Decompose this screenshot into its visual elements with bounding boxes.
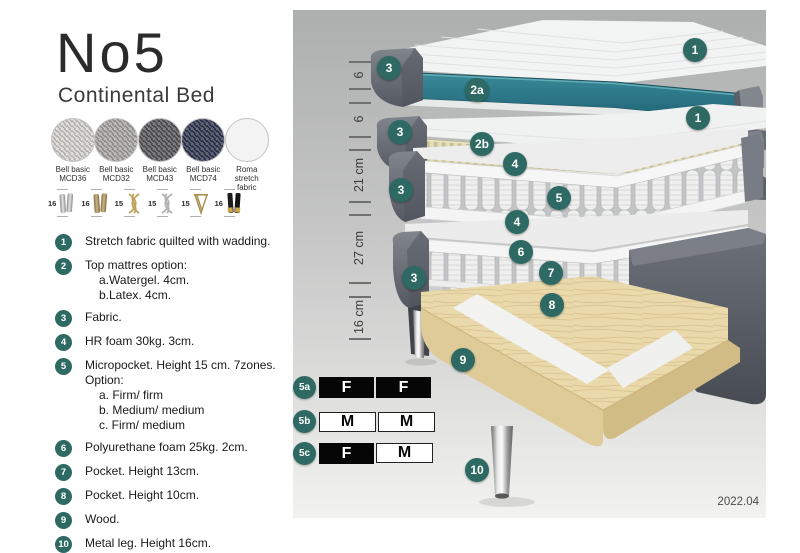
leg-height-label: 16 (215, 199, 223, 208)
fabric-swatch-circle (51, 118, 95, 162)
callout-1: 1 (686, 106, 710, 130)
measure-dash (157, 189, 168, 190)
feature-text: Stretch fabric quilted with wadding. (85, 234, 270, 249)
firmness-row-label: 5a (293, 376, 316, 399)
firmness-cell: F (319, 443, 374, 464)
feature-item: 6 Polyurethane foam 25kg. 2cm. (55, 440, 287, 457)
product-sheet-page: { "header": { "title": "No5", "subtitle"… (0, 0, 800, 533)
measure-label: 16 cm (352, 287, 368, 347)
feature-number-badge: 5 (55, 358, 72, 375)
fabric-swatch: Bell basicMCD74 (182, 118, 226, 192)
twisted-silver-leg-icon (157, 191, 177, 215)
feature-text: Pocket. Height 13cm. (85, 464, 199, 479)
fabric-swatch: Bell basicMCD36 (51, 118, 95, 192)
page-title: No5 (56, 20, 168, 85)
cylinder-black-gold-leg-icon (224, 191, 244, 215)
callout-9: 9 (451, 348, 475, 372)
cylinder-silver-leg-icon (57, 191, 77, 215)
feature-text: Top mattres option: a.Watergel. 4cm. b.L… (85, 258, 189, 303)
measure-dash (157, 216, 168, 217)
feature-list: 1 Stretch fabric quilted with wadding. 2… (55, 234, 287, 553)
measure-label: 21 cm (352, 145, 368, 205)
leg-height-label: 15 (148, 199, 156, 208)
measure-tick (349, 282, 371, 284)
exploded-view-panel: 6 6 21 cm 27 cm 16 cm 1 2a 3 1 2b 3 4 5 … (293, 10, 766, 518)
feature-subitem: b.Latex. 4cm. (99, 288, 189, 303)
fabric-swatch-circle (225, 118, 269, 162)
feature-number-badge: 9 (55, 512, 72, 529)
fabric-swatch: Bell basicMCD32 (95, 118, 139, 192)
feature-item: 7 Pocket. Height 13cm. (55, 464, 287, 481)
callout-4: 4 (505, 210, 529, 234)
firmness-row: 5c F M (293, 442, 433, 465)
callout-2a: 2a (465, 78, 489, 102)
callout-3: 3 (388, 120, 412, 144)
feature-item: 2 Top mattres option: a.Watergel. 4cm. b… (55, 258, 287, 303)
callout-3: 3 (402, 266, 426, 290)
feature-number-badge: 7 (55, 464, 72, 481)
leg-option: 16 (48, 188, 77, 218)
fabric-swatch-circle (94, 118, 138, 162)
fabric-swatch-label: Bell basicMCD74 (186, 165, 220, 183)
callout-8: 8 (540, 293, 564, 317)
feature-item: 10 Metal leg. Height 16cm. (55, 536, 287, 553)
fabric-swatch-label: Bell basicMCD43 (143, 165, 177, 183)
leg-option: 15 (148, 188, 177, 218)
feature-number-badge: 3 (55, 310, 72, 327)
feature-text: Micropocket. Height 15 cm. 7zones. Optio… (85, 358, 287, 433)
fabric-swatch-circle (181, 118, 225, 162)
measure-dash (190, 189, 201, 190)
callout-3: 3 (389, 178, 413, 202)
hairpin-leg-icon (191, 191, 211, 215)
firmness-row-label: 5b (293, 410, 316, 433)
fabric-swatch-label: Bell basicMCD36 (56, 165, 90, 183)
firmness-cell: M (376, 443, 433, 463)
callout-6: 6 (509, 240, 533, 264)
callout-1: 1 (683, 38, 707, 62)
measure-dash (124, 216, 135, 217)
measure-dash (124, 189, 135, 190)
feature-number-badge: 4 (55, 334, 72, 351)
fabric-swatch-circle (138, 118, 182, 162)
fabric-swatch: Bell basicMCD43 (138, 118, 182, 192)
feature-number-badge: 10 (55, 536, 72, 553)
firmness-cell: M (319, 412, 376, 432)
feature-subitem: b. Medium/ medium (99, 403, 287, 418)
firmness-row: 5b M M (293, 410, 435, 433)
feature-text: Polyurethane foam 25kg. 2cm. (85, 440, 248, 455)
feature-number-badge: 2 (55, 258, 72, 275)
leg-height-label: 15 (181, 199, 189, 208)
leg-option: 16 (81, 188, 110, 218)
feature-text: Fabric. (85, 310, 122, 325)
feature-item: 1 Stretch fabric quilted with wadding. (55, 234, 287, 251)
feature-number-badge: 6 (55, 440, 72, 457)
callout-2b: 2b (470, 132, 494, 156)
feature-number-badge: 1 (55, 234, 72, 251)
measure-dash (224, 216, 235, 217)
feature-text: Pocket. Height 10cm. (85, 488, 199, 503)
measure-label: 27 cm (352, 218, 368, 278)
callout-4: 4 (503, 152, 527, 176)
callout-10: 10 (465, 458, 489, 482)
leg-option: 15 (181, 188, 210, 218)
feature-text: HR foam 30kg. 3cm. (85, 334, 194, 349)
feature-item: 3 Fabric. (55, 310, 287, 327)
measure-dash (91, 189, 102, 190)
twisted-gold-leg-icon (124, 191, 144, 215)
feature-item: 9 Wood. (55, 512, 287, 529)
callout-7: 7 (539, 261, 563, 285)
feature-text: Metal leg. Height 16cm. (85, 536, 211, 551)
leg-height-label: 16 (81, 199, 89, 208)
firmness-row: 5a F F (293, 376, 431, 399)
measure-dash (57, 216, 68, 217)
page-subtitle: Continental Bed (58, 84, 215, 108)
version-label: 2022.04 (717, 496, 759, 508)
feature-text: Wood. (85, 512, 119, 527)
leg-options-row: 16 16 15 (48, 188, 244, 218)
measure-tick (349, 214, 371, 216)
firmness-cell: F (376, 377, 431, 398)
firmness-cell: M (378, 412, 435, 432)
cylinder-brass-leg-icon (91, 191, 111, 215)
measure-dash (190, 216, 201, 217)
callout-5: 5 (547, 186, 571, 210)
leg-option: 16 (215, 188, 244, 218)
feature-number-badge: 8 (55, 488, 72, 505)
feature-item: 8 Pocket. Height 10cm. (55, 488, 287, 505)
firmness-row-label: 5c (293, 442, 316, 465)
measure-dash (91, 216, 102, 217)
feature-item: 5 Micropocket. Height 15 cm. 7zones. Opt… (55, 358, 287, 433)
fabric-swatch-list: Bell basicMCD36 Bell basicMCD32 Bell bas… (51, 118, 269, 192)
feature-subitem: a.Watergel. 4cm. (99, 273, 189, 288)
measure-dash (224, 189, 235, 190)
leg-height-label: 16 (48, 199, 56, 208)
left-info-panel: No5 Continental Bed Bell basicMCD36 Bell… (0, 0, 293, 533)
firmness-cell: F (319, 377, 374, 398)
callout-3: 3 (377, 56, 401, 80)
measure-dash (57, 189, 68, 190)
leg-height-label: 15 (115, 199, 123, 208)
fabric-swatch-label: Bell basicMCD32 (99, 165, 133, 183)
feature-item: 4 HR foam 30kg. 3cm. (55, 334, 287, 351)
fabric-swatch: Romastretch fabric (225, 118, 269, 192)
measure-label: 6 (352, 89, 368, 149)
feature-subitem: c. Firm/ medium (99, 418, 287, 433)
leg-option: 15 (115, 188, 144, 218)
feature-subitem: a. Firm/ firm (99, 388, 287, 403)
